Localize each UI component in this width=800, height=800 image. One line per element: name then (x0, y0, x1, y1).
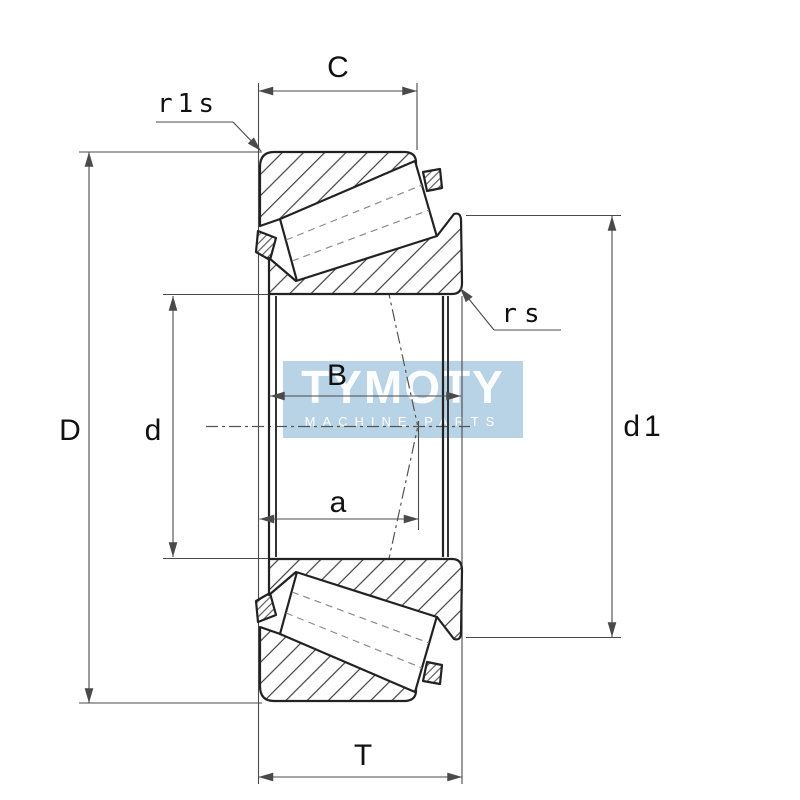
label-C: C (327, 51, 349, 84)
label-r1s: r1s (157, 89, 219, 119)
cage-bottom-right (423, 662, 442, 684)
label-d: d (145, 414, 162, 447)
bearing-bottom-half (256, 559, 462, 701)
bearing-diagram: C r1s rs D d B a d1 T (0, 0, 800, 800)
label-D: D (59, 414, 81, 447)
label-rs: rs (501, 299, 546, 329)
label-B: B (327, 359, 347, 392)
cage-top-right (423, 169, 442, 191)
bearing-top-half (256, 152, 462, 294)
label-T: T (354, 739, 372, 772)
bearing-drawing-canvas: TYMOTY MACHINE PARTS (0, 0, 800, 800)
label-a: a (330, 486, 347, 519)
label-d1: d1 (623, 410, 664, 443)
